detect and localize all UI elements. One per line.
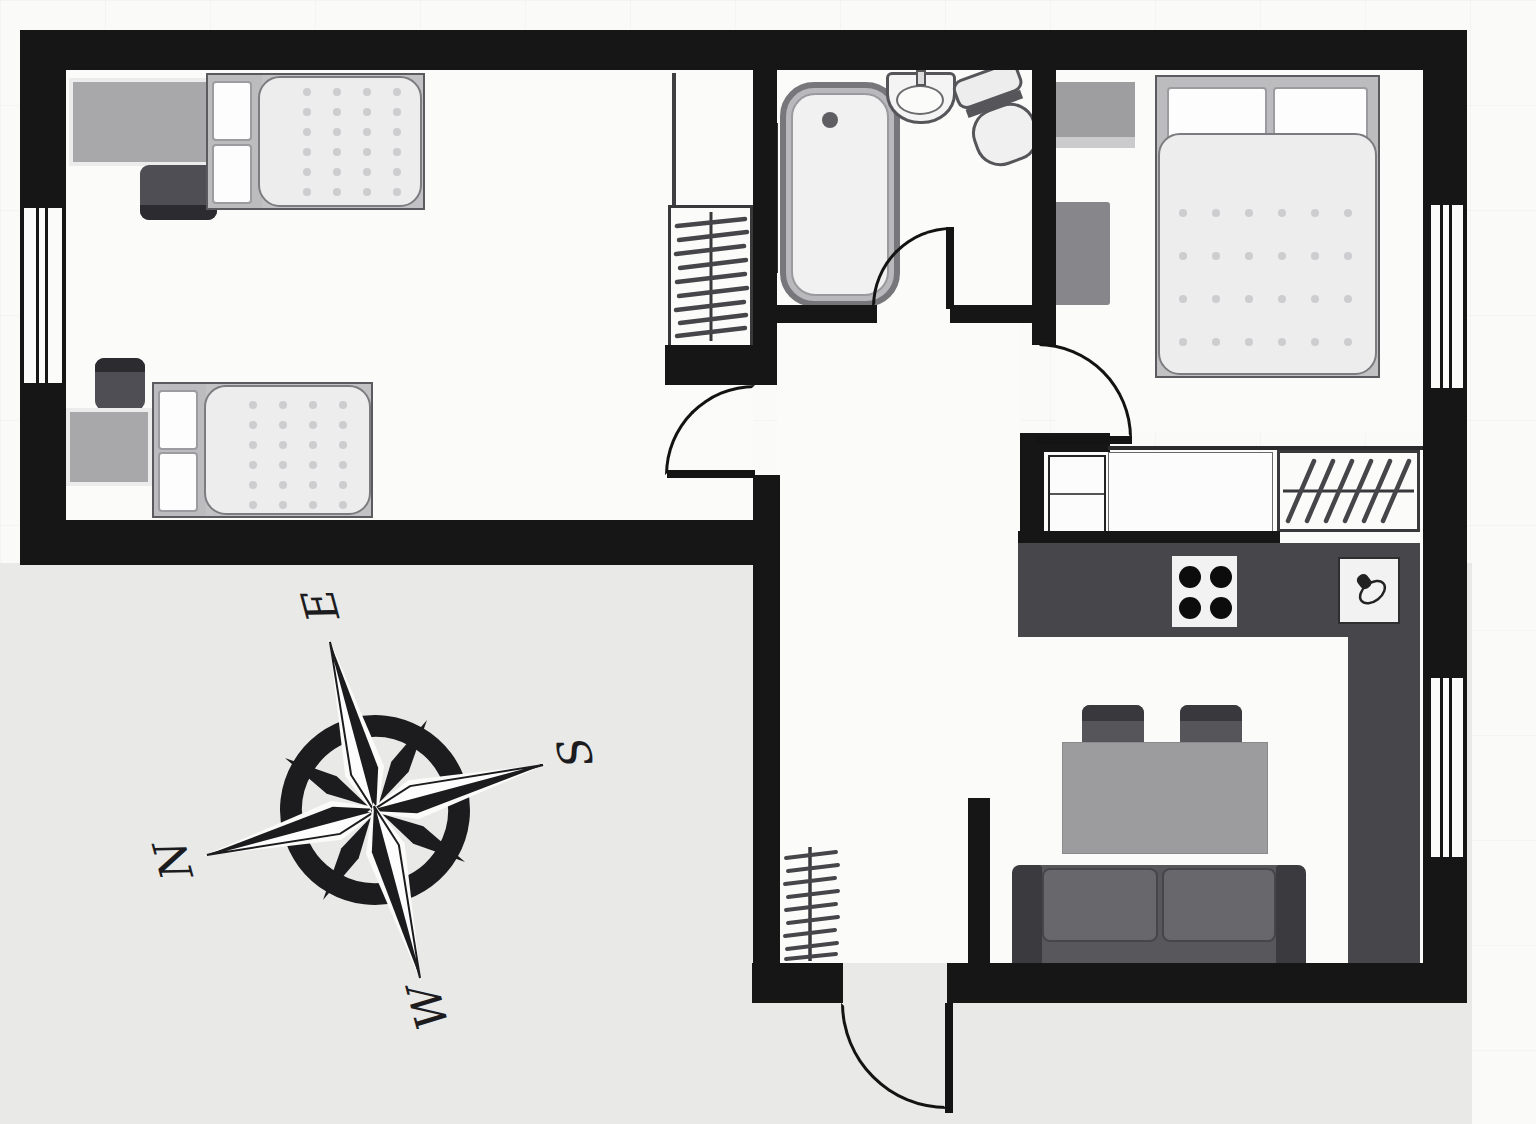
kitchen-sink	[1338, 557, 1400, 624]
wall	[20, 520, 780, 565]
dining-table	[1062, 742, 1268, 854]
sofa-cushion	[1162, 868, 1276, 942]
wardrobe-hatch	[671, 208, 750, 345]
faucet-icon	[1340, 559, 1398, 622]
wall	[1020, 440, 1044, 543]
pillow	[212, 81, 252, 141]
mattress-buttons	[1179, 209, 1377, 381]
worktop	[1108, 452, 1273, 533]
wall	[665, 345, 755, 385]
wall	[947, 963, 1467, 1003]
pillow	[158, 390, 198, 450]
compass-rose: N E S W	[145, 580, 605, 1040]
kitchen-counter-side	[1348, 637, 1420, 963]
stove-burners	[1179, 566, 1234, 621]
bathtub-drain	[822, 112, 838, 128]
dresser-edge	[1050, 137, 1135, 148]
wall	[1423, 30, 1467, 1003]
compass-label-north: N	[143, 832, 204, 889]
wall	[753, 475, 780, 1003]
compass-label-west: W	[396, 974, 459, 1039]
desk	[70, 412, 148, 482]
wall	[752, 963, 843, 1003]
sofa-cushion	[1042, 868, 1158, 942]
wall	[950, 305, 1032, 323]
window	[1431, 678, 1463, 857]
mattress-buttons	[249, 401, 369, 521]
compass-label-east: E	[291, 582, 350, 631]
window	[24, 208, 62, 383]
cabinet-shelf-line	[1050, 493, 1104, 495]
closet-partition	[672, 73, 676, 205]
door-leaf	[667, 470, 755, 478]
pillow	[158, 452, 198, 512]
mattress-buttons	[303, 88, 423, 208]
window	[1431, 205, 1463, 388]
wardrobe-rack	[1277, 450, 1420, 532]
wall	[1032, 70, 1056, 345]
chair-backrest	[95, 358, 145, 372]
floor-plan: N E S W	[0, 0, 1536, 1124]
side-cabinet	[1048, 202, 1110, 305]
desk	[73, 82, 218, 162]
wall	[753, 70, 777, 385]
wardrobe-rack	[668, 205, 753, 348]
chair-backrest	[1082, 705, 1144, 721]
wall	[1108, 446, 1423, 450]
bathtub-basin	[791, 93, 889, 296]
cabinet	[1048, 455, 1106, 533]
wall	[968, 798, 990, 963]
dresser	[1050, 82, 1135, 148]
wardrobe-hatch	[1280, 453, 1417, 529]
sofa-armrest	[1012, 865, 1042, 963]
sofa-armrest	[1276, 865, 1306, 963]
chair-backrest	[1180, 705, 1242, 721]
compass-label-south: S	[546, 731, 604, 777]
entry-door-leaf	[945, 1003, 953, 1113]
door-leaf	[946, 227, 954, 309]
wall	[775, 305, 877, 323]
faucet-icon	[916, 70, 926, 86]
pillow	[212, 144, 252, 204]
office-chair	[95, 358, 145, 410]
wall	[20, 30, 1467, 70]
coat-rack	[783, 845, 839, 963]
door-leaf	[1037, 436, 1132, 444]
